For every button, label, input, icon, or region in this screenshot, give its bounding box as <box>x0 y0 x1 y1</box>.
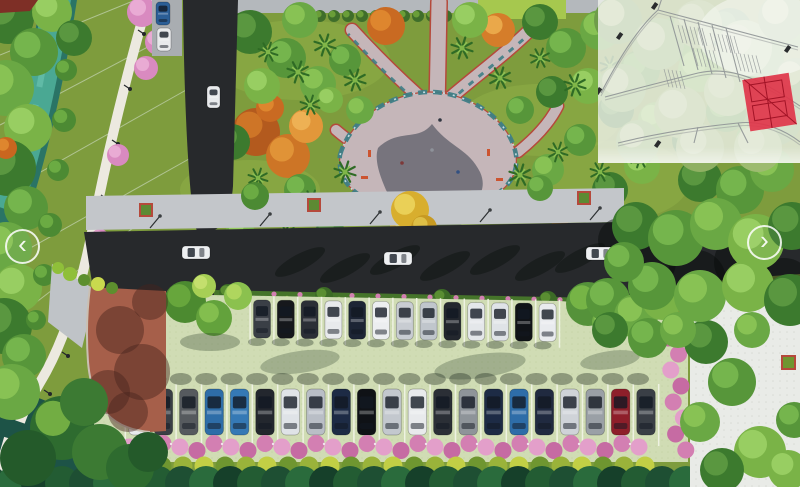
carousel-prev-button[interactable]: ‹ <box>5 229 40 264</box>
parked-car <box>444 302 461 340</box>
parked-car <box>515 303 532 341</box>
parked-car <box>396 302 413 340</box>
parked-car <box>484 389 503 435</box>
chevron-right-icon: › <box>760 227 769 253</box>
parked-car <box>156 2 170 25</box>
parked-car <box>459 389 478 435</box>
parked-car <box>301 301 318 339</box>
road-car <box>384 252 412 265</box>
parked-car <box>277 300 294 338</box>
image-viewer: ‹ › <box>0 0 800 487</box>
parked-car <box>434 389 453 435</box>
parked-car <box>230 389 249 435</box>
parked-car <box>157 28 171 51</box>
parked-car <box>307 389 326 435</box>
parked-car <box>510 389 529 435</box>
parked-car <box>254 300 271 338</box>
parked-car <box>535 389 554 435</box>
parked-car <box>383 389 402 435</box>
parked-car <box>586 389 605 435</box>
parked-car <box>180 389 199 435</box>
parked-car <box>256 389 275 435</box>
parked-car <box>539 303 556 341</box>
road-car <box>182 246 210 259</box>
parked-car <box>332 389 351 435</box>
parked-car <box>357 389 376 435</box>
parked-car <box>468 303 485 341</box>
parked-car <box>492 303 509 341</box>
parked-car <box>611 389 630 435</box>
parked-car <box>408 389 427 435</box>
parked-car <box>205 389 224 435</box>
parked-car <box>281 389 300 435</box>
carousel-next-button[interactable]: › <box>747 225 782 260</box>
parked-car <box>420 302 437 340</box>
parked-car <box>207 86 220 108</box>
aerial-rendering <box>0 0 800 487</box>
parked-car <box>561 389 580 435</box>
parked-car <box>325 301 342 339</box>
parked-car <box>637 389 656 435</box>
parked-car <box>373 301 390 339</box>
chevron-left-icon: ‹ <box>18 231 27 257</box>
parked-car <box>349 301 366 339</box>
